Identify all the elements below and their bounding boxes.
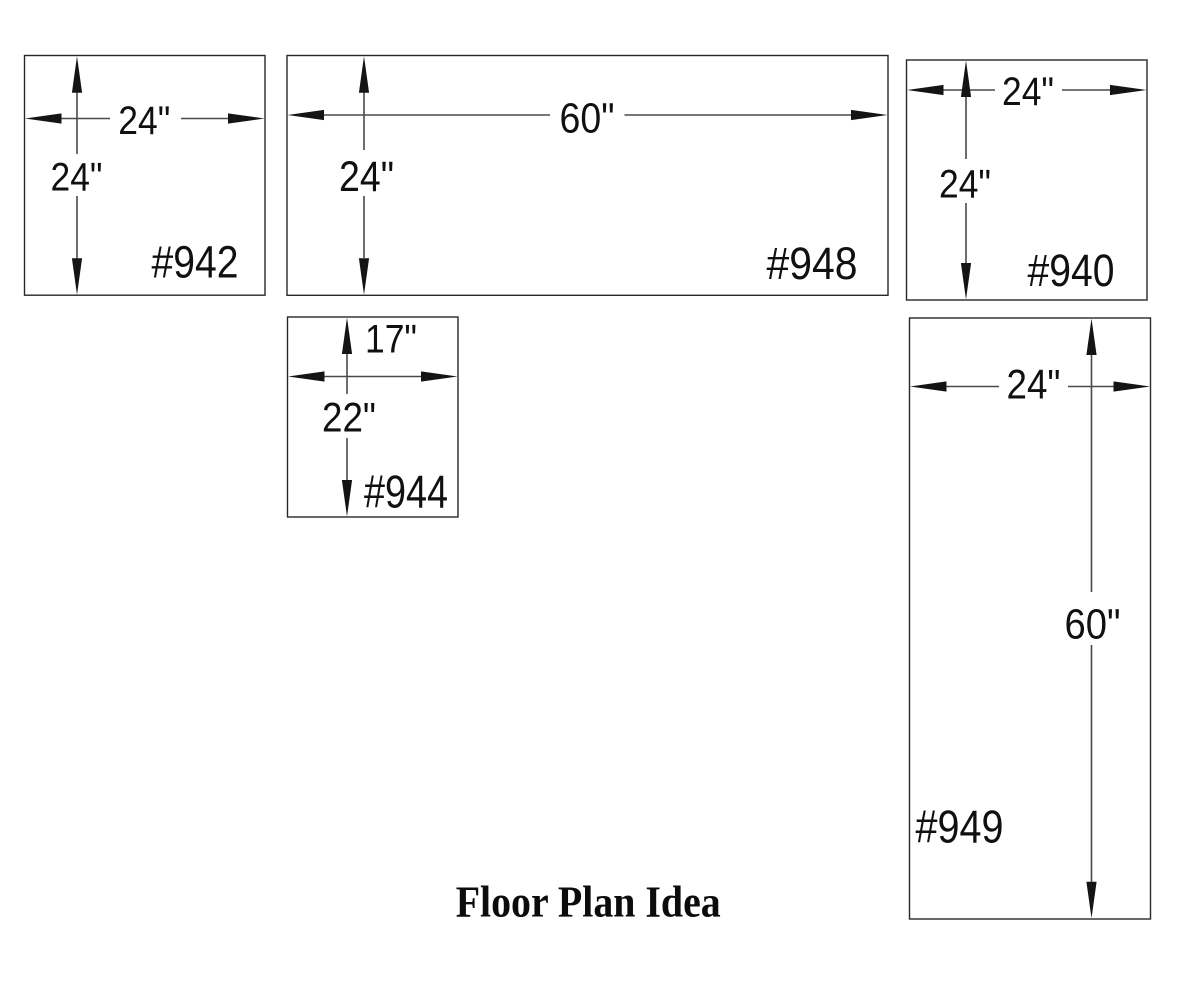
svg-text:17": 17" (365, 318, 417, 362)
svg-text:#944: #944 (364, 466, 448, 518)
svg-text:#942: #942 (152, 237, 239, 288)
svg-text:#948: #948 (767, 238, 858, 289)
svg-text:#949: #949 (916, 801, 1004, 853)
svg-text:24": 24" (939, 163, 991, 207)
svg-text:60": 60" (560, 95, 615, 143)
svg-text:24": 24" (1002, 70, 1054, 114)
svg-text:24": 24" (118, 99, 170, 143)
svg-text:#940: #940 (1028, 245, 1115, 296)
svg-text:24": 24" (1007, 361, 1061, 408)
svg-text:Floor Plan Idea: Floor Plan Idea (456, 878, 721, 927)
svg-text:24": 24" (339, 153, 394, 201)
svg-text:60": 60" (1065, 601, 1121, 649)
svg-text:22": 22" (322, 394, 376, 441)
svg-text:24": 24" (51, 156, 103, 200)
